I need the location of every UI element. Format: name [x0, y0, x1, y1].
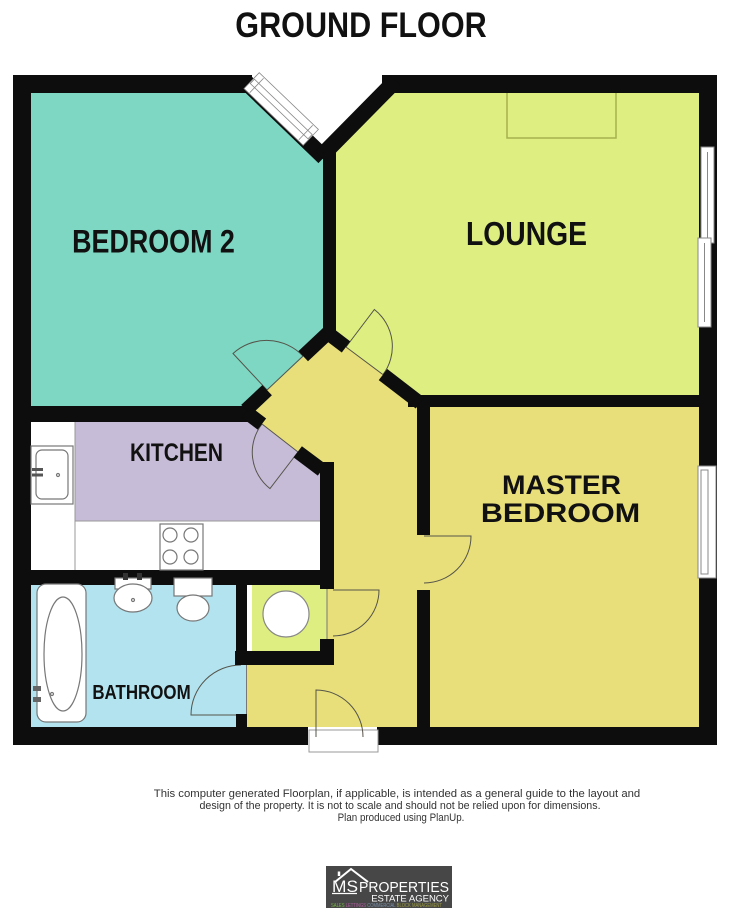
svg-text:MASTER: MASTER — [502, 470, 621, 500]
svg-text:SALES LETTINGS COMMERCIAL BLOC: SALES LETTINGS COMMERCIAL BLOCK MANAGEME… — [331, 903, 443, 909]
svg-text:BEDROOM 2: BEDROOM 2 — [72, 224, 235, 260]
svg-text:LOUNGE: LOUNGE — [466, 215, 587, 253]
svg-text:Plan produced using PlanUp.: Plan produced using PlanUp. — [338, 813, 465, 825]
svg-text:GROUND FLOOR: GROUND FLOOR — [235, 5, 487, 44]
svg-text:BEDROOM: BEDROOM — [481, 499, 640, 529]
svg-text:KITCHEN: KITCHEN — [130, 438, 223, 466]
svg-text:BATHROOM: BATHROOM — [92, 681, 190, 704]
svg-text:This computer generated Floorp: This computer generated Floorplan, if ap… — [154, 788, 640, 800]
svg-text:design of the property. It is: design of the property. It is not to sca… — [199, 800, 600, 812]
